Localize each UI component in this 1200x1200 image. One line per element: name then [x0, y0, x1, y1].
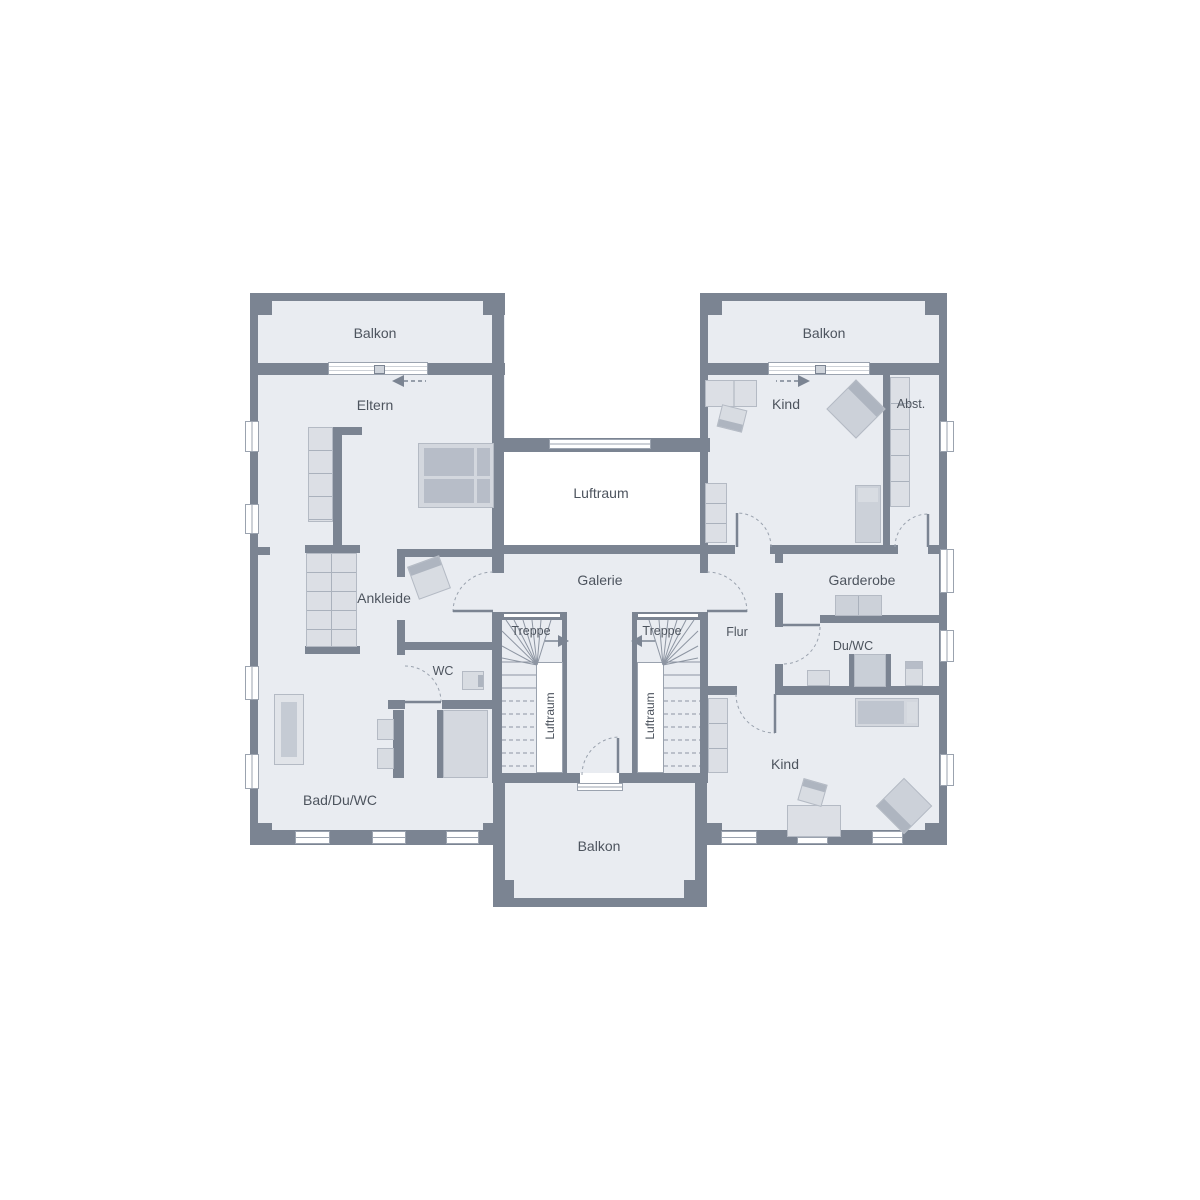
shower-bad [443, 710, 488, 778]
wall [405, 642, 493, 650]
room-label-balkon-top-left: Balkon [354, 325, 397, 341]
balcony-door-opening [580, 773, 619, 783]
window [245, 421, 259, 452]
window [245, 754, 259, 789]
wall [250, 293, 505, 301]
wall [305, 646, 360, 654]
wall [393, 710, 404, 778]
wall [775, 686, 947, 695]
bathtub [274, 694, 304, 765]
wall [250, 547, 270, 555]
floor-right-wing [700, 293, 947, 845]
stair-nosing [504, 614, 560, 617]
wall [700, 612, 708, 783]
bed-kind-bottom [855, 698, 919, 727]
dresser-kind-top [855, 485, 881, 543]
wall [870, 363, 947, 375]
room-label-bad-du-wc: Bad/Du/WC [303, 792, 377, 808]
wall [700, 293, 947, 301]
sliding-door-handle [815, 365, 826, 374]
window [872, 831, 903, 844]
room-label-luftraum-center: Luftraum [573, 485, 628, 501]
window [446, 831, 479, 844]
room-label-treppe-right: Treppe [642, 624, 681, 638]
room-label-balkon-bottom: Balkon [578, 838, 621, 854]
window [295, 831, 330, 844]
toilet-duwc [905, 661, 923, 686]
bidet-bad [377, 748, 394, 769]
room-label-wc: WC [433, 664, 454, 678]
sliding-door-handle [374, 365, 385, 374]
room-label-kind-top: Kind [772, 396, 800, 412]
window [940, 549, 954, 593]
wall [397, 549, 405, 577]
window [245, 504, 259, 534]
sink-duwc [807, 670, 830, 686]
wardrobe-ankleide [306, 553, 357, 647]
wall [700, 823, 722, 845]
wall [492, 545, 735, 554]
room-label-abstellraum: Abst. [897, 397, 926, 411]
balcony-door-sill [577, 783, 623, 791]
room-label-luftraum-stair-left: Luftraum [543, 692, 557, 739]
room-label-galerie: Galerie [577, 572, 622, 588]
wall [333, 427, 362, 435]
room-label-eltern: Eltern [357, 397, 394, 413]
wall [700, 363, 768, 375]
wall [770, 545, 898, 554]
window [940, 754, 954, 786]
wall [684, 880, 701, 900]
wall [497, 880, 514, 900]
toilet-wc [462, 671, 484, 690]
wall [388, 700, 405, 709]
wall [493, 898, 707, 907]
window [372, 831, 406, 844]
wardrobe-eltern [308, 427, 333, 522]
wall [820, 615, 939, 623]
wall [883, 375, 890, 547]
desk-kind-bottom [787, 805, 841, 837]
window-luftraum [549, 439, 651, 449]
window [940, 630, 954, 662]
window [721, 831, 757, 844]
sliding-door-kind [768, 362, 870, 375]
wall [333, 427, 342, 547]
bed-eltern [418, 443, 494, 508]
shelf-kind-bottom [708, 698, 728, 773]
sliding-door-eltern [328, 362, 428, 375]
wall [397, 549, 497, 557]
room-label-treppe-left: Treppe [511, 624, 550, 638]
stair-nosing [638, 614, 698, 617]
wardrobe-garderobe [835, 595, 882, 616]
room-label-du-wc: Du/WC [833, 639, 873, 653]
wall [492, 612, 502, 783]
wall [925, 823, 947, 845]
wall [492, 773, 580, 783]
shelf-kind-top [705, 483, 727, 543]
floor-plan: Balkon Eltern Ankleide WC Bad/Du/WC Luft… [0, 0, 1200, 1200]
room-label-kind-bottom: Kind [771, 756, 799, 772]
room-label-garderobe: Garderobe [829, 572, 896, 588]
wall [619, 773, 707, 783]
wall [250, 823, 272, 845]
wall [775, 553, 783, 563]
wall [775, 593, 783, 627]
room-label-balkon-top-right: Balkon [803, 325, 846, 341]
shower-duwc [854, 654, 886, 687]
wall [886, 654, 891, 687]
wall [700, 686, 737, 695]
window [245, 666, 259, 700]
wall [397, 620, 405, 655]
window [940, 421, 954, 452]
toilet-bad [377, 719, 394, 740]
room-label-ankleide: Ankleide [357, 590, 411, 606]
room-label-flur: Flur [726, 625, 748, 639]
room-label-luftraum-stair-right: Luftraum [643, 692, 657, 739]
wardrobe-kind-top [705, 380, 757, 407]
